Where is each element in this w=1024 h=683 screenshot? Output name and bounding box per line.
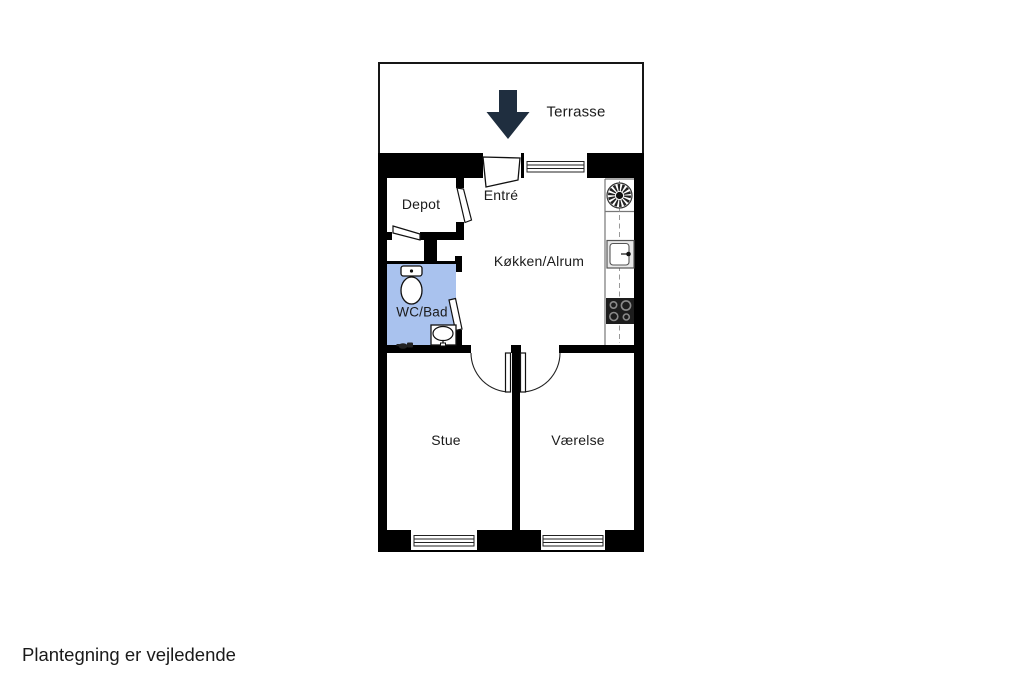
wall-segment-stue-vaerelse [512,353,520,530]
vaerelse-door-opening [521,345,559,353]
entre-label: Entré [484,187,518,203]
wc-bad-label: WC/Bad [396,305,447,320]
hall-door-opening [392,232,420,240]
wall-segment-wc-right-lower [455,330,462,345]
depot-label: Depot [402,196,440,212]
floorplan-canvas: Terrasse [0,0,1024,683]
apartment-interior [387,178,634,530]
depot-door-opening [456,188,464,222]
kitchen-window-opening [524,153,587,178]
wall-segment-wc-right-upper [455,256,462,272]
vaerelse-window-opening [541,530,605,550]
wall-segment-hall-right [424,240,437,263]
disclaimer-text: Plantegning er vejledende [22,644,236,666]
stue-door-opening [471,345,511,353]
terrasse-label: Terrasse [546,104,605,121]
kokken-alrum-label: Køkken/Alrum [494,253,584,269]
stue-label: Stue [431,432,461,448]
entrance-door-opening [483,153,521,178]
stue-window-opening [411,530,477,550]
vaerelse-label: Værelse [551,432,605,448]
